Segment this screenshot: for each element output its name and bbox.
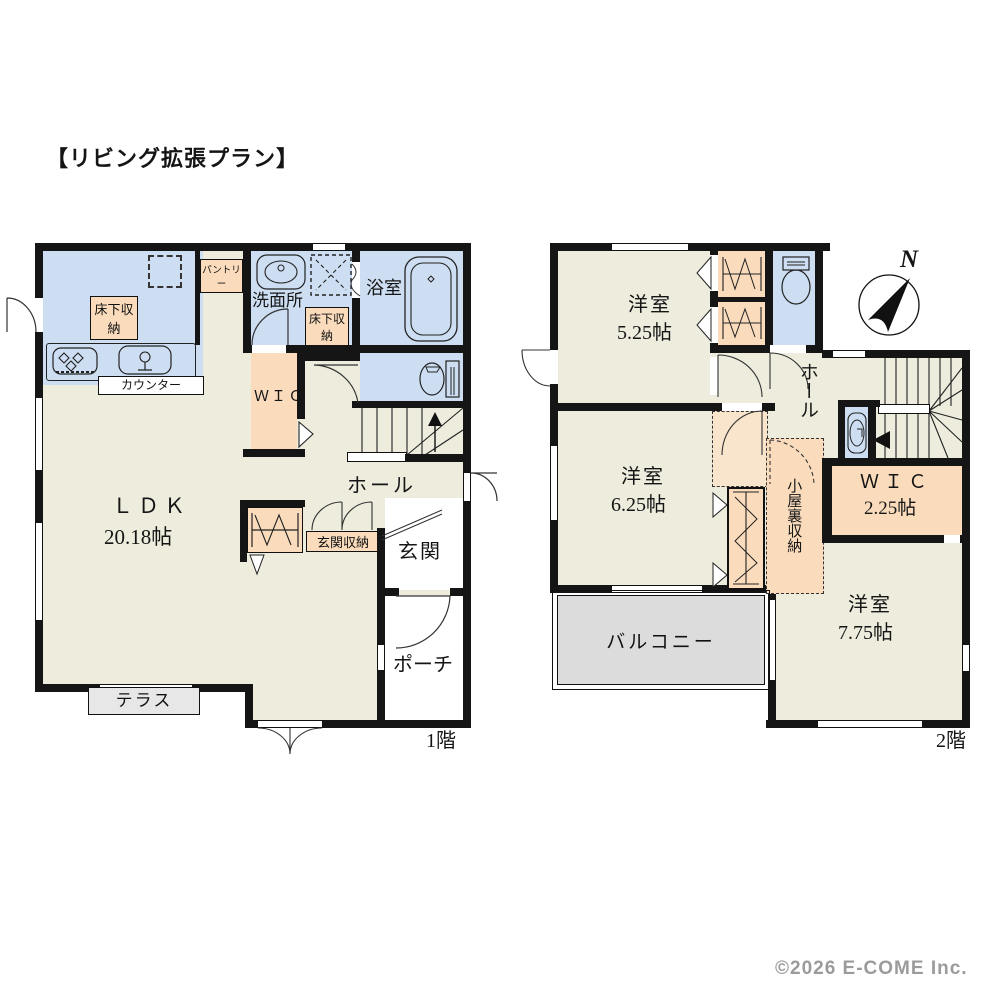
bathtub-icon [404, 256, 458, 342]
closet3-door-marker2 [712, 562, 728, 588]
bedroom1-label: 洋室 [628, 294, 672, 317]
wic1-door-marker [298, 421, 314, 448]
toilet-icon [418, 357, 462, 401]
fridge-space-outline [148, 255, 182, 288]
ldk-label: ＬＤＫ [112, 494, 190, 518]
bedroom3-window-bottom [818, 720, 922, 728]
f2-casement-gap [550, 350, 558, 384]
kitchen-washroom-wall [243, 251, 251, 353]
wic1-wall-bottom [243, 449, 305, 457]
hall1-label: ホール [347, 475, 416, 498]
kitchen-sink-icon [118, 345, 172, 377]
wic1-label: ＷＩＣ [254, 389, 305, 406]
porch-window [377, 645, 385, 670]
front-door-arc [396, 592, 452, 650]
f2-midwall [710, 345, 823, 353]
attic-storage-label: 小屋裏収納 [784, 478, 801, 578]
closet2a-door-marker [696, 256, 712, 290]
entrance-label: 玄関 [398, 541, 442, 564]
f1-garden-doors-gap [258, 720, 322, 728]
f1-side-door-gap [463, 473, 471, 501]
toilet1-door-arc [314, 357, 360, 403]
ldk-size: 20.18帖 [104, 525, 172, 549]
toilet1-wall-bottom [352, 401, 463, 408]
hanger-pipe-icon [249, 509, 301, 551]
washroom-door-gap [252, 345, 286, 353]
toilet2-icon [777, 255, 813, 307]
copyright-text: ©2026 E-COME Inc. [775, 958, 968, 980]
stairs1-rail [347, 452, 407, 462]
washroom-door-arc [252, 309, 288, 345]
entrance-storage-label: 玄関収納 [306, 531, 380, 552]
f1-left-door-arc [7, 296, 37, 332]
f2-casement-arc [522, 350, 550, 388]
bedroom2-window-left [550, 446, 558, 520]
counter-label: カウンター [98, 376, 204, 395]
bedroom1-size: 5.25帖 [617, 322, 672, 345]
bath-door-wave [352, 262, 360, 298]
wic2-door-gap [944, 535, 960, 543]
slope-door-gap [722, 403, 762, 411]
bath-label: 浴室 [366, 278, 402, 299]
kitchen-floor-storage-label: 床下収納 [90, 296, 138, 340]
stairs2-window [833, 350, 865, 358]
washroom-floor-storage-label: 床下収納 [305, 307, 349, 347]
entstorage-wall-top [240, 500, 305, 507]
closet2b-door-marker [696, 308, 712, 342]
vanity-sink-icon [256, 254, 306, 290]
stove-icon [52, 347, 98, 377]
toilet2-door-gap [770, 345, 806, 353]
wic2-wall-top [822, 458, 970, 466]
plan-title: 【リビング拡張プラン】 [46, 146, 299, 171]
f1-window-left1 [35, 398, 43, 470]
slope-door-arc [722, 411, 762, 455]
bedroom2-label: 洋室 [621, 466, 665, 489]
f2-wall-left [550, 243, 558, 592]
f1-window-left2 [35, 523, 43, 620]
stairs2-rail [878, 404, 930, 414]
basin-wall-left [838, 400, 845, 458]
closet3-door-marker1 [712, 492, 728, 518]
washing-machine-icon [310, 254, 352, 296]
washroom-label: 洗面所 [252, 291, 303, 311]
entstorage-door-marker [249, 554, 265, 576]
entrance-wall-left [377, 528, 385, 720]
wic2-wall-left [822, 466, 832, 535]
hanger-pipe-icon-2a [720, 253, 764, 295]
floor1-caption: 1階 [426, 730, 456, 753]
f1-garden-door-arcs [256, 728, 324, 756]
wic1-wall-right [297, 353, 305, 419]
bedroom3-size: 7.75帖 [838, 622, 893, 645]
porch-label: ポーチ [393, 654, 453, 677]
f1-wall-top [35, 243, 471, 251]
pantry-label: パントリー [200, 259, 243, 293]
hanger-pipe-icon-2b [720, 303, 764, 343]
closet2-wall-right [765, 243, 773, 350]
terrace-label: テラス [88, 687, 200, 715]
wic2-label: ＷＩＣ [860, 472, 932, 494]
stairs1-icon [347, 408, 463, 455]
bedroom3-label: 洋室 [848, 594, 892, 617]
entrance-step-line [382, 506, 444, 542]
bedroom1-door-arc [718, 355, 762, 397]
f1-window-top [313, 243, 345, 251]
f2-wall-right-upper [815, 243, 823, 350]
compass-icon [856, 270, 922, 336]
bedroom1-window-top [612, 243, 688, 251]
closet2-divider [718, 297, 765, 302]
bedroom3-window-right [962, 645, 970, 671]
wic2-size: 2.25帖 [864, 498, 916, 520]
bedroom2-size: 6.25帖 [611, 494, 666, 517]
hanger-pipe-icon-vert [729, 489, 763, 588]
stairs1-wall-bottom [405, 454, 463, 462]
bedroom1-door-gap [710, 357, 718, 395]
floor2-caption: 2階 [936, 730, 966, 753]
hall-double-door-arcs [310, 502, 376, 530]
balcony-label: バルコニー [557, 595, 765, 685]
f2-wall-top [550, 243, 830, 251]
f1-side-door-arc [471, 473, 497, 503]
floorplan-canvas: 【リビング拡張プラン】 [0, 0, 1000, 1000]
basin-icon [847, 412, 867, 454]
basin-wall-right [868, 407, 876, 458]
hall2-label: ホール [796, 362, 818, 442]
entstorage-wall-left [240, 500, 247, 562]
entrance-storage-closet [247, 507, 303, 553]
